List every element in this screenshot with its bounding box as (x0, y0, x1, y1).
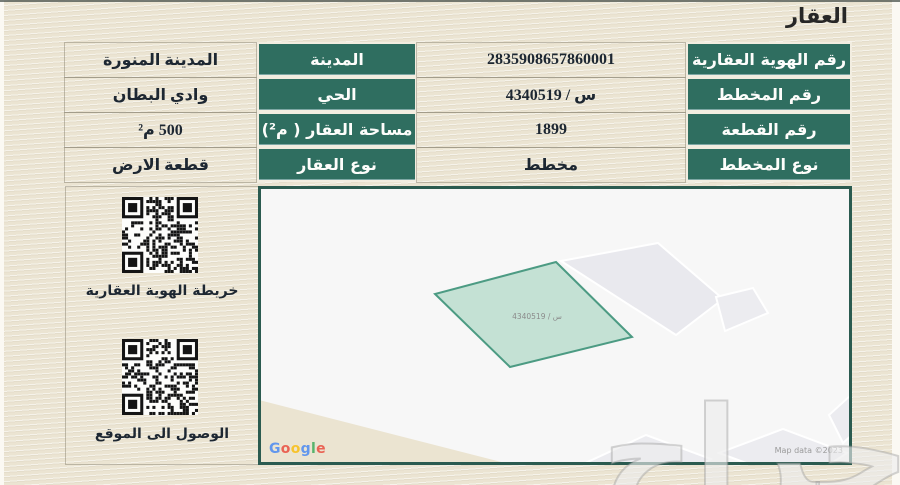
district-value: وادي البطان (64, 77, 257, 113)
plot-number-value: 1899 (416, 112, 686, 148)
page-title: العقار (786, 4, 848, 28)
parcel-number-label: س / 4340519 (512, 312, 562, 321)
property-id-value: 2835908657860001 (416, 42, 686, 78)
property-type-header: نوع العقار (257, 147, 417, 182)
map-canvas[interactable]: س / 4340519 Google Map data ©2023 (258, 186, 852, 465)
neighbor-parcel (581, 435, 711, 462)
google-logo[interactable]: Google (269, 441, 326, 457)
property-report-page: العقار المدينة المنورة المدينة 283590865… (0, 0, 900, 485)
parcel-map-graphic: س / 4340519 (261, 189, 849, 462)
neighbor-parcel (829, 395, 849, 443)
plan-type-header: نوع المخطط (686, 147, 852, 182)
qr-panel: خريطة الهوية العقارية الوصول الى الموقع (65, 186, 259, 465)
top-edge-strip (0, 0, 900, 2)
property-id-header: رقم الهوية العقارية (686, 42, 852, 77)
map-attribution: Map data ©2023 (775, 446, 843, 455)
location-access-qr-code (122, 339, 198, 415)
neighbor-parcel (716, 288, 768, 331)
area-value: 500 م² (64, 112, 257, 148)
plan-number-header: رقم المخطط (686, 77, 852, 112)
property-info-table: المدينة المنورة المدينة 2835908657860001… (65, 42, 852, 182)
document-background: العقار المدينة المنورة المدينة 283590865… (4, 0, 892, 485)
city-header: المدينة (257, 42, 417, 77)
plot-number-header: رقم القطعة (686, 112, 852, 147)
property-type-value: قطعة الارض (64, 147, 257, 183)
district-header: الحي (257, 77, 417, 112)
city-value: المدينة المنورة (64, 42, 257, 78)
plan-type-value: مخطط (416, 147, 686, 183)
plan-number-value: س / 4340519 (416, 77, 686, 113)
area-header: مساحة العقار ( م²) (257, 112, 417, 147)
qr2-label: الوصول الى الموقع (66, 426, 258, 442)
qr1-label: خريطة الهوية العقارية (66, 283, 258, 299)
property-id-map-qr-code (122, 197, 198, 273)
